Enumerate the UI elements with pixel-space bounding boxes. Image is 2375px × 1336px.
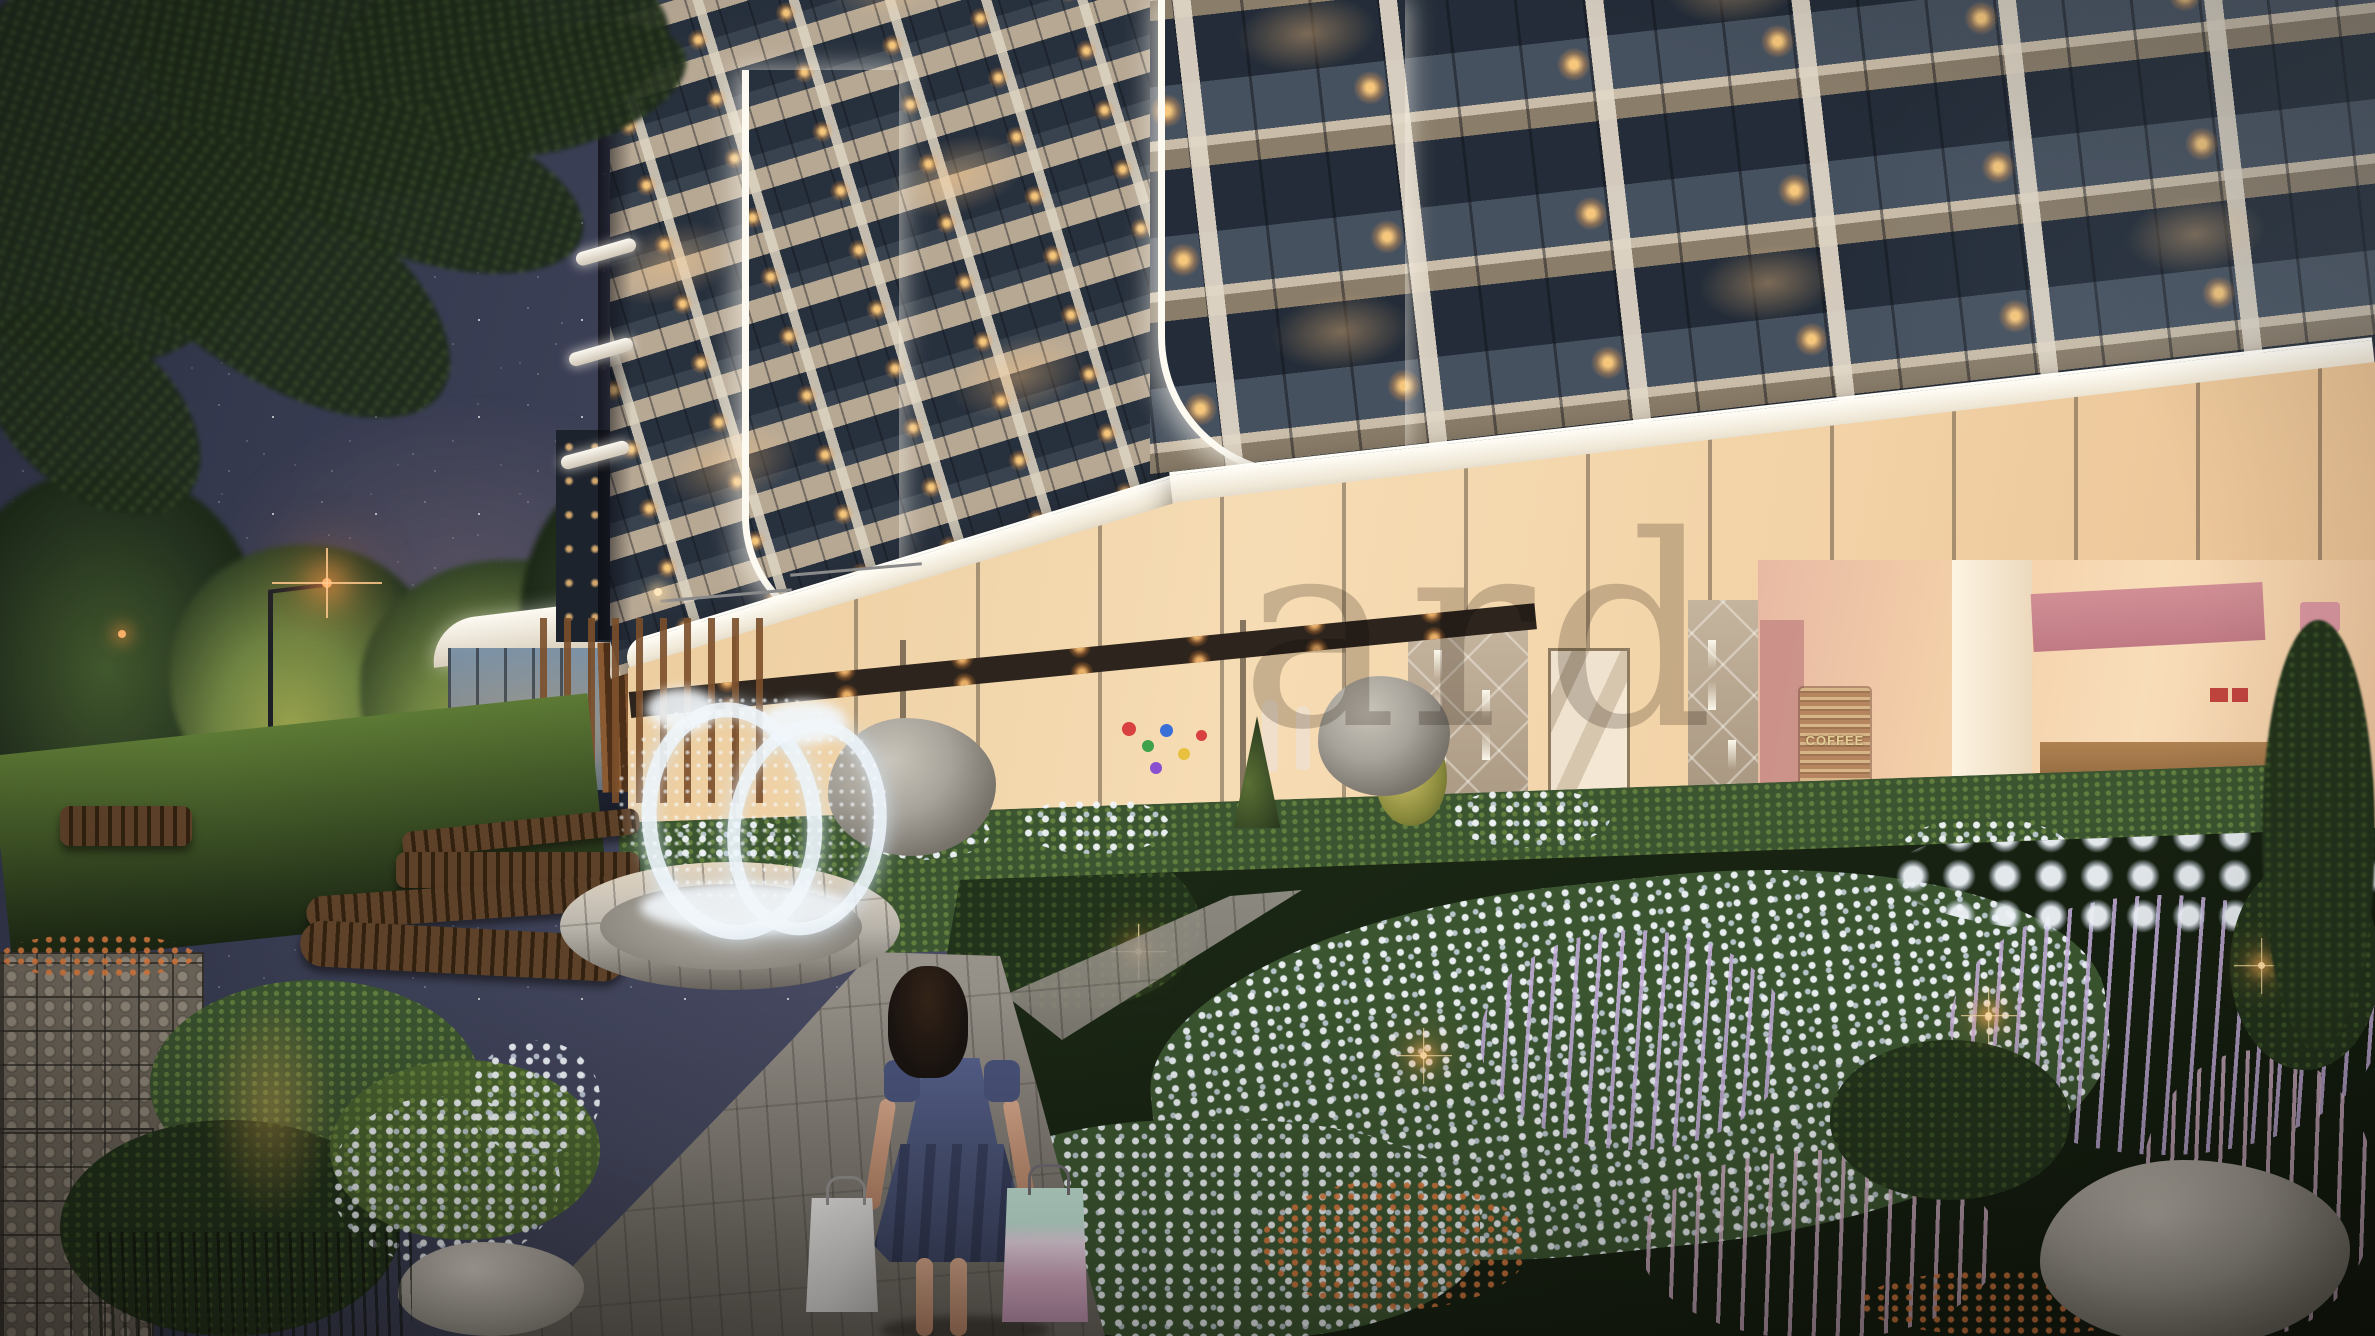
playroom-ball	[1142, 740, 1154, 752]
tall-shrub	[2262, 620, 2375, 1050]
white-flower-cluster	[1020, 798, 1170, 854]
night-courtyard-rendering: COFFEE	[0, 0, 2375, 1336]
shopping-bag-gray	[806, 1198, 878, 1312]
shopping-bag-gray-handle	[826, 1176, 866, 1205]
juniper-mass	[1830, 1040, 2070, 1200]
orange-flowers-on-gabion	[0, 934, 195, 978]
cafe-pink-ceiling	[2031, 582, 2266, 652]
playroom-ball	[1178, 748, 1190, 760]
garden-light	[1985, 1012, 1992, 1019]
fountain-foam	[640, 882, 850, 932]
orange-flower-patch	[1260, 1180, 1530, 1310]
bench-far	[60, 806, 192, 846]
watermark: ard	[1240, 480, 1940, 760]
playroom-ball	[1150, 762, 1162, 774]
fountain-splash	[646, 688, 716, 730]
garden-uplight-glow	[205, 995, 335, 1225]
white-rock-pile	[398, 1242, 584, 1336]
led-corner-strip-center	[1158, 0, 1405, 477]
girl-left-leg	[950, 1258, 967, 1336]
girl-sleeve	[984, 1060, 1020, 1102]
playroom-ball	[1196, 730, 1207, 741]
shopping-bag-pink-handle	[1028, 1164, 1070, 1195]
fountain-spray	[616, 694, 886, 904]
walkway-lamp-head	[654, 588, 662, 596]
cafe-red-box	[2232, 688, 2248, 702]
led-corner-strip-left	[742, 70, 899, 637]
girl-hair	[888, 966, 968, 1078]
garden-light	[2258, 962, 2265, 969]
watermark-text: ard	[1240, 480, 1724, 788]
white-flower-cluster	[470, 1040, 600, 1156]
white-flower-cluster	[1450, 788, 1610, 848]
street-lamp-light	[322, 578, 332, 588]
dark-grass-silhouette	[88, 1232, 412, 1336]
garden-light	[1420, 1052, 1427, 1059]
shopping-bag-pink	[1002, 1188, 1088, 1322]
fountain-splash	[762, 700, 846, 744]
playroom-ball	[1122, 722, 1136, 736]
lavender-spikes	[1480, 930, 1790, 1150]
street-lamp-light-far	[118, 630, 126, 638]
cafe-red-box	[2210, 688, 2228, 702]
playroom-ball	[1160, 724, 1173, 737]
girl-right-leg	[916, 1258, 933, 1336]
